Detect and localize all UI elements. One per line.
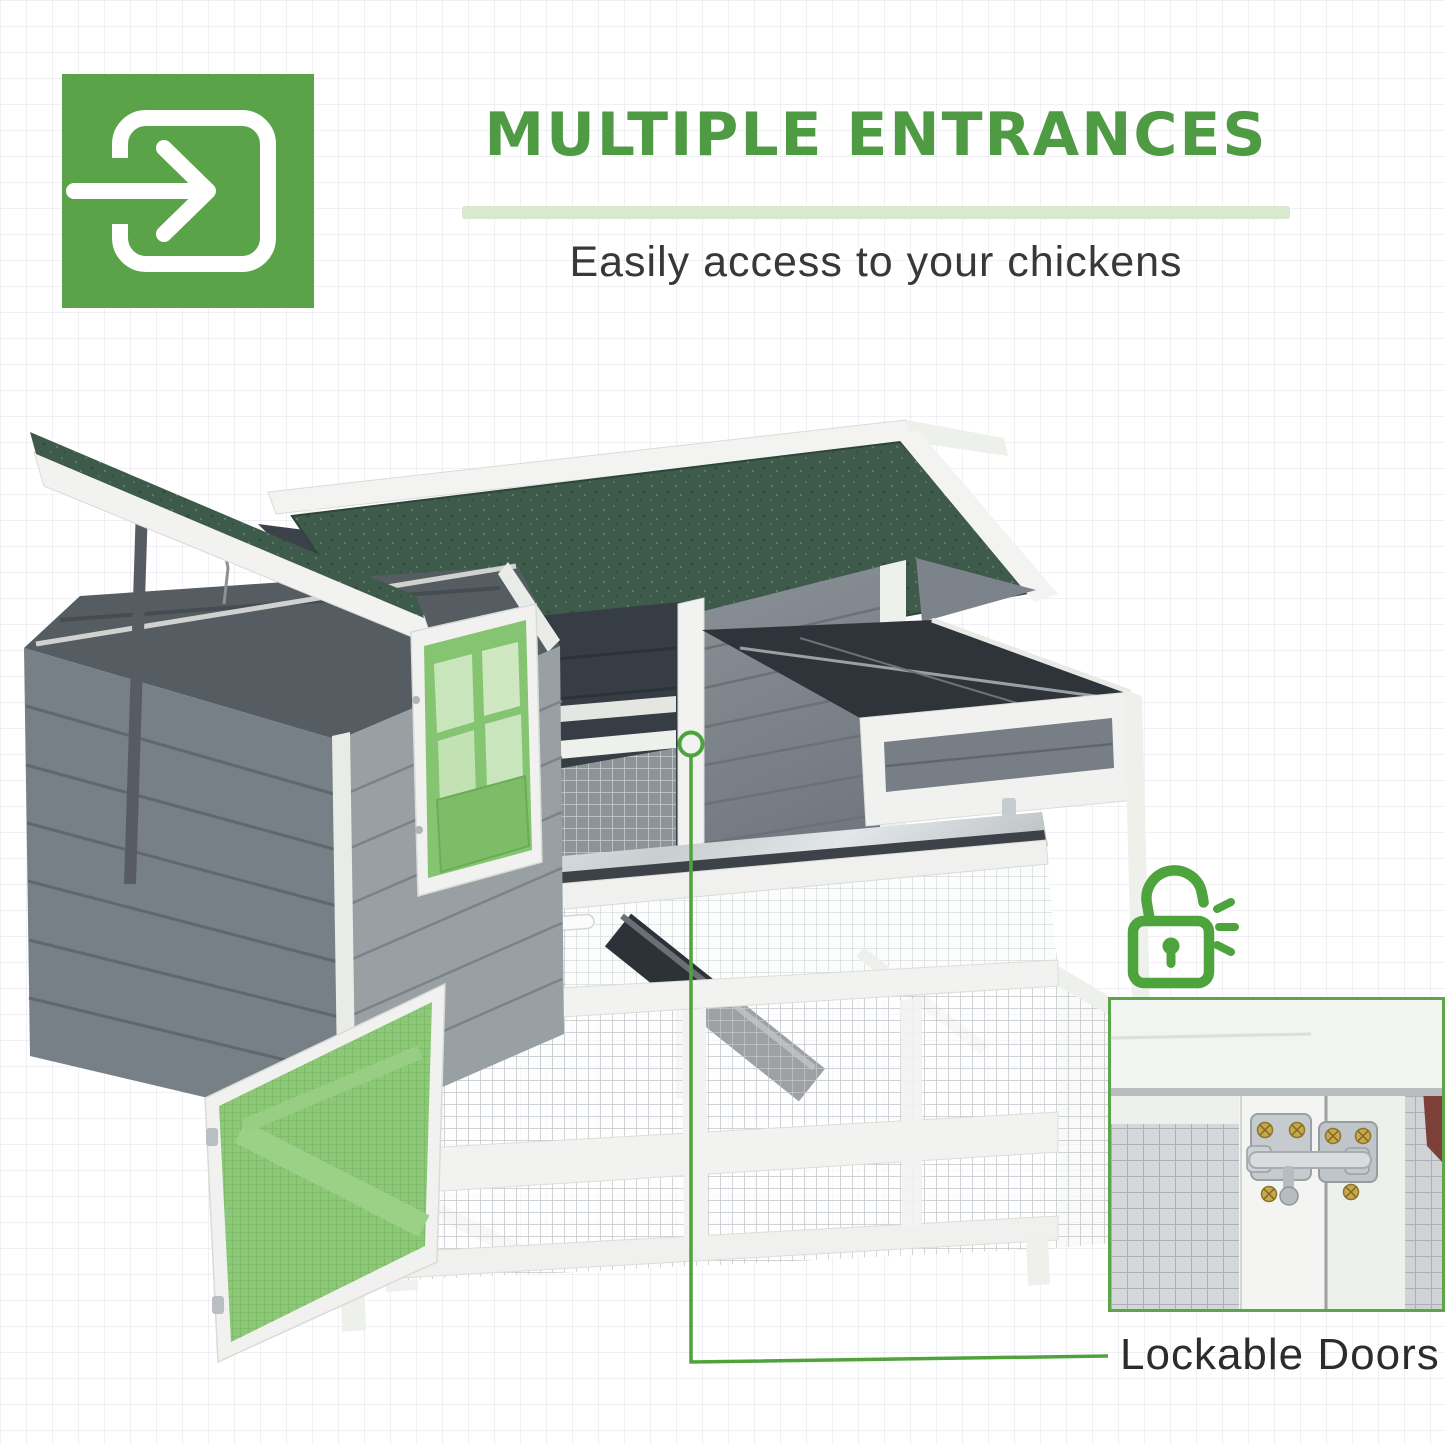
page: { "header": { "icon": "enter-arrow-icon"… [0,0,1445,1445]
callout-label: Lockable Doors [1120,1330,1440,1380]
latch-closeup-image [1111,1000,1442,1309]
inset-top-rail [1111,1000,1442,1090]
door-hinge [412,696,420,704]
entry-door-open [411,604,542,896]
run-leg [1026,1236,1050,1286]
mesh-door-hinge [212,1296,224,1314]
latch-closeup-inset [1108,997,1445,1312]
bolt-bar [1249,1152,1371,1168]
padlock-shackle [1142,866,1205,921]
mesh-door-hinge [206,1128,218,1146]
door-hinge [415,826,423,834]
run-front-post [682,1008,708,1244]
click-dashes [1217,902,1235,952]
coop-photo [24,420,1152,1362]
inset-left-board [1111,1096,1241,1124]
